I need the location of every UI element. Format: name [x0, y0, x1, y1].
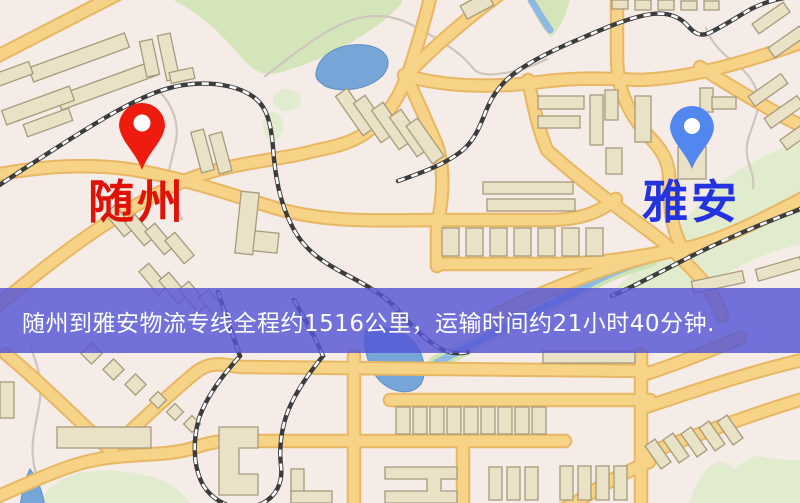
route-info-text: 随州到雅安物流专线全程约1516公里，运输时间约21小时40分钟.: [0, 304, 715, 338]
route-info-banner: 随州到雅安物流专线全程约1516公里，运输时间约21小时40分钟.: [0, 288, 800, 353]
map-canvas[interactable]: [0, 0, 800, 503]
destination-city-label: 雅安: [642, 176, 740, 228]
origin-city-label: 随州: [88, 176, 186, 228]
map-screenshot: 随州 雅安 随州到雅安物流专线全程约1516公里，运输时间约21小时40分钟.: [0, 0, 800, 503]
origin-pin-icon[interactable]: [119, 103, 165, 170]
destination-pin-icon[interactable]: [670, 106, 714, 169]
